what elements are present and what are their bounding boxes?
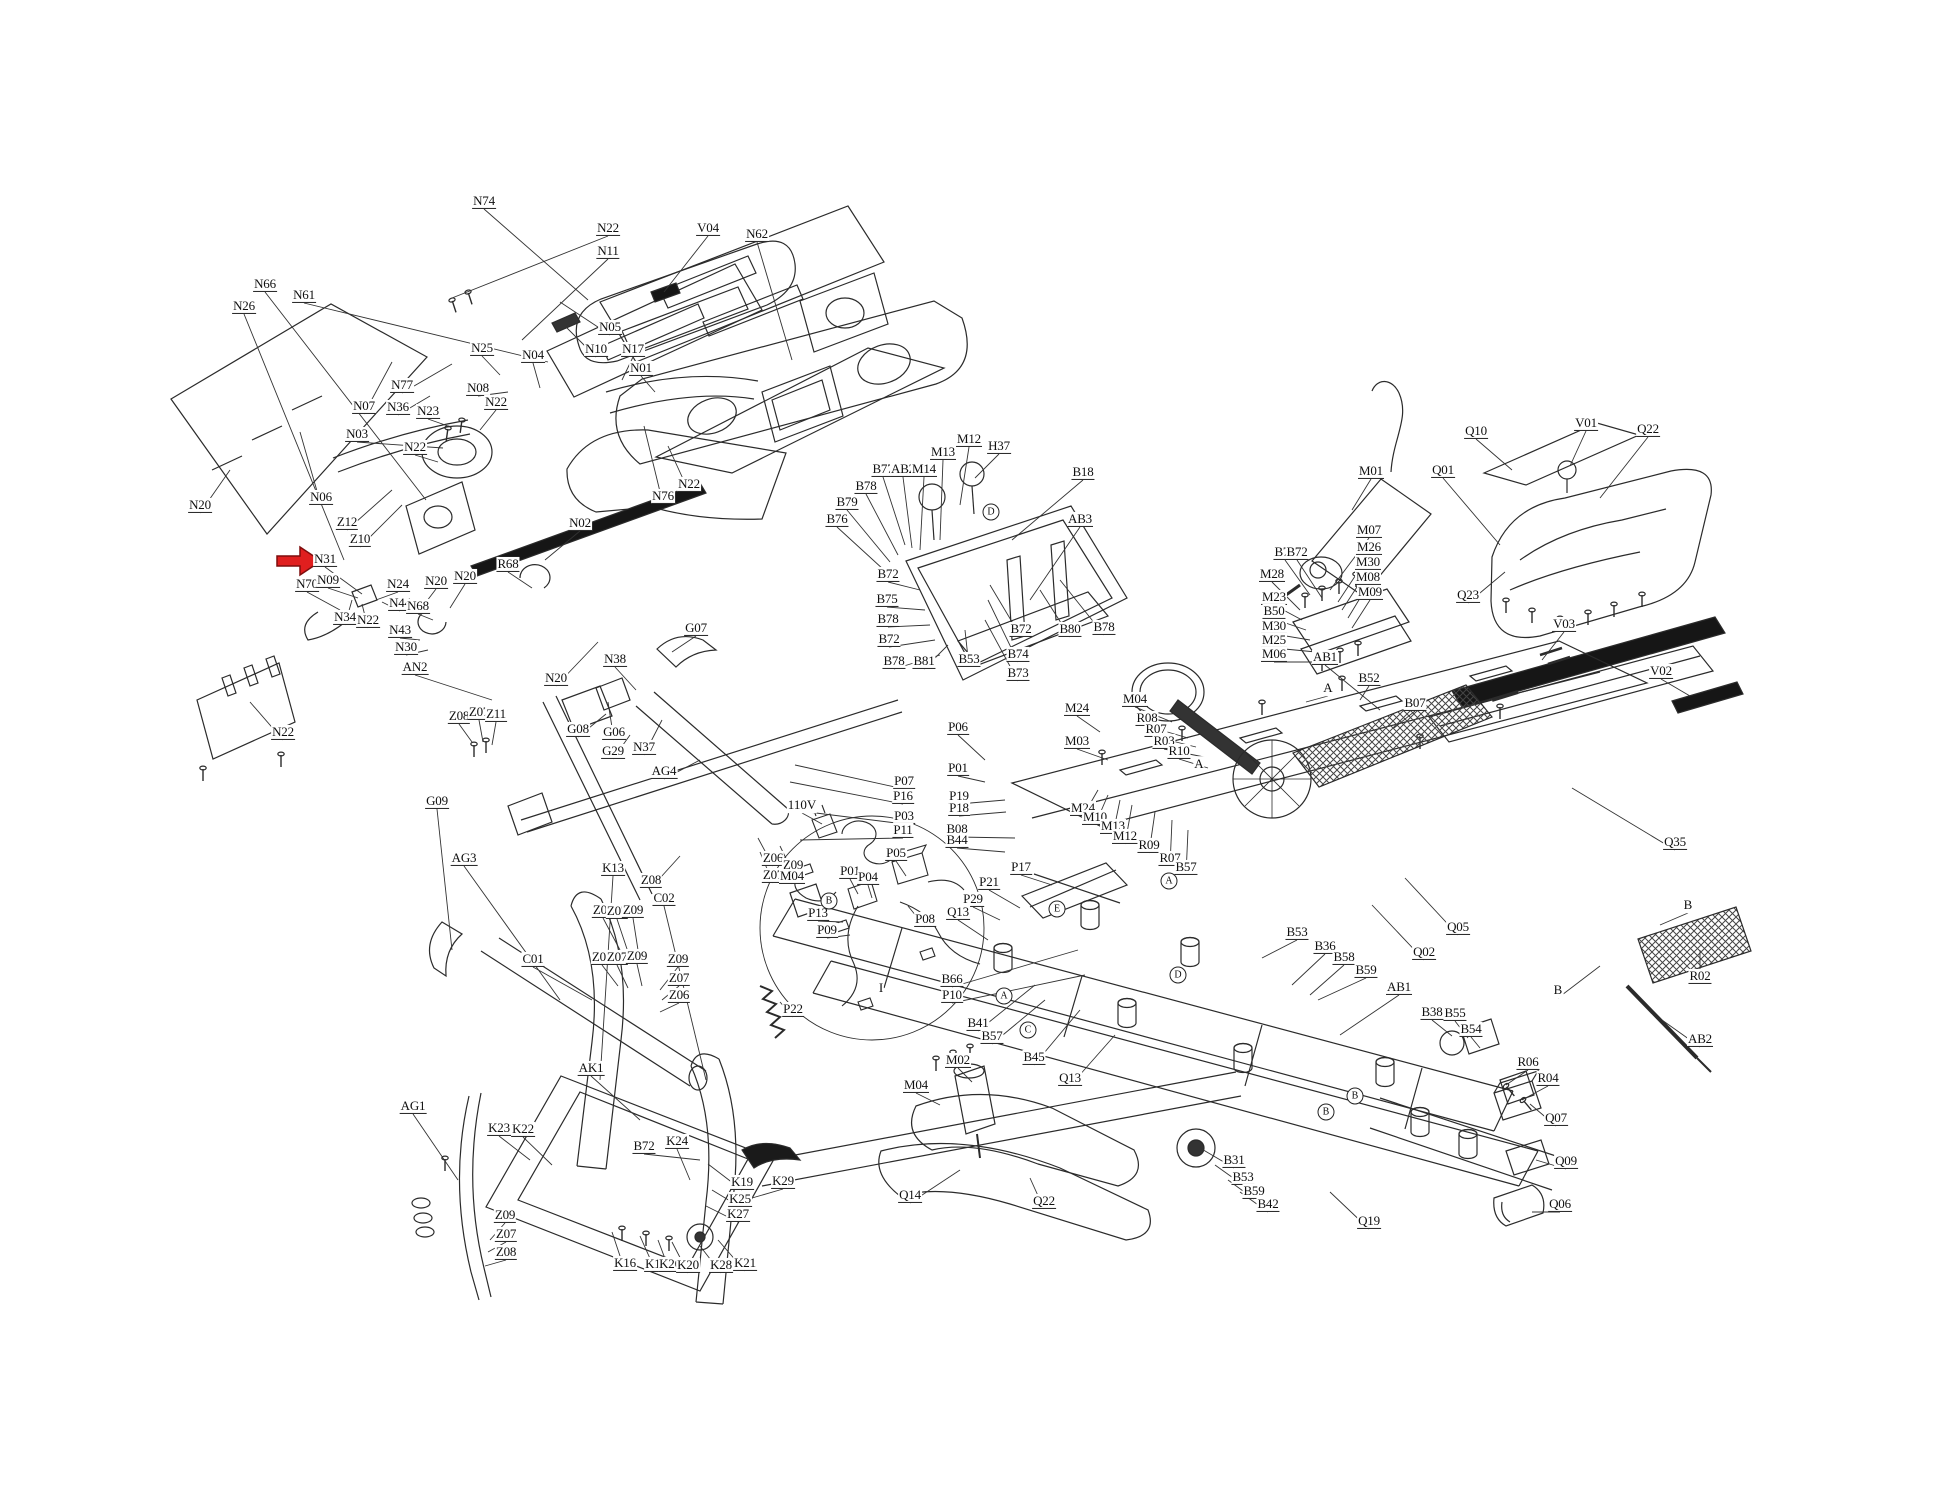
part-label-z06-58: Z06 (762, 851, 784, 866)
part-label-m28-125: M28 (1259, 567, 1285, 582)
part-label-n22-37: N22 (356, 613, 380, 628)
part-label-b-209: B (1347, 1088, 1364, 1105)
part-label-e-182: E (1049, 901, 1066, 918)
part-label-b45-189: B45 (1022, 1050, 1045, 1065)
part-label-b54-213: B54 (1459, 1022, 1482, 1037)
part-label-n22-27: N22 (677, 477, 701, 492)
part-label-b44-166: B44 (945, 833, 968, 848)
part-label-b78-109: B78 (882, 654, 905, 669)
part-label-a-160: A (1161, 873, 1178, 890)
part-label-q13-190: Q13 (1058, 1071, 1082, 1086)
part-label-m12-156: M12 (1112, 829, 1138, 844)
part-label-c-188: C (1020, 1022, 1037, 1039)
part-label-v03-147: V03 (1552, 617, 1576, 632)
part-label-k24-80: K24 (665, 1134, 689, 1149)
part-label-g08-47: G08 (566, 722, 590, 737)
part-label-n05-8: N05 (598, 320, 622, 335)
part-label-n68-39: N68 (406, 599, 430, 614)
part-label-b57-186: B57 (980, 1029, 1003, 1044)
part-label-c01-67: C01 (521, 952, 544, 967)
part-label-i-193: I (878, 980, 884, 996)
part-label-b59-207: B59 (1354, 963, 1377, 978)
part-label-p05-171: P05 (885, 846, 907, 861)
part-label-k19-81: K19 (730, 1175, 754, 1190)
part-label-n25-12: N25 (470, 341, 494, 356)
part-label-p09-179: P09 (816, 923, 838, 938)
part-label-z07-86: Z07 (495, 1227, 517, 1242)
part-label-p22-192: P22 (782, 1002, 804, 1017)
part-label-b18-103: B18 (1071, 465, 1094, 480)
part-label-z08-54: Z08 (448, 709, 470, 724)
part-label-z07-69: Z07 (606, 950, 628, 965)
part-label-r02-219: R02 (1688, 969, 1711, 984)
part-label-n36-18: N36 (386, 400, 410, 415)
part-label-p06-161: P06 (947, 720, 969, 735)
part-label-n34-36: N34 (333, 610, 357, 625)
part-label-n61-3: N61 (292, 288, 316, 303)
part-label-n26-2: N26 (232, 299, 256, 314)
part-label-v02-148: V02 (1649, 664, 1673, 679)
part-label-q22-196: Q22 (1032, 1194, 1056, 1209)
part-label-g07-44: G07 (684, 621, 708, 636)
part-label-n22-4: N22 (596, 221, 620, 236)
part-label-q09-217: Q09 (1554, 1154, 1578, 1169)
part-label-m04-194: M04 (903, 1078, 929, 1093)
part-label-b78-116: B78 (1092, 620, 1115, 635)
part-label-b66-183: B66 (940, 972, 963, 987)
part-label-b72-79: B72 (632, 1139, 655, 1154)
part-label-b55-212: B55 (1443, 1006, 1466, 1021)
part-label-r68-29: R68 (496, 557, 519, 572)
part-label-z07-72: Z07 (668, 971, 690, 986)
part-label-k29-82: K29 (771, 1174, 795, 1189)
part-label-p08-180: P08 (914, 912, 936, 927)
part-label-n20-46: N20 (544, 671, 568, 686)
part-label-b07-149: B07 (1403, 696, 1426, 711)
part-label-n04-11: N04 (521, 348, 545, 363)
part-label-z09-71: Z09 (667, 952, 689, 967)
part-label-z12-23: Z12 (336, 515, 358, 530)
part-label-k13-74: K13 (601, 861, 625, 876)
part-label-b-222: B (1553, 982, 1564, 998)
part-label-n30-41: N30 (394, 640, 418, 655)
part-label-m07-120: M07 (1356, 523, 1382, 538)
part-label-p04-174: P04 (857, 870, 879, 885)
part-label-z09-70: Z09 (626, 949, 648, 964)
part-label-d-202: D (983, 504, 1000, 521)
part-label-b58-206: B58 (1332, 950, 1355, 965)
part-label-n22-20: N22 (403, 440, 427, 455)
part-label-a-139: A (1193, 756, 1204, 772)
part-label-b81-110: B81 (912, 654, 935, 669)
part-label-d-203: D (1170, 967, 1187, 984)
part-label-z09-66: Z09 (622, 903, 644, 918)
part-label-b42-200: B42 (1256, 1197, 1279, 1212)
part-label-q02-152: Q02 (1412, 945, 1436, 960)
part-label-b57-159: B57 (1174, 860, 1197, 875)
part-label-r04-215: R04 (1536, 1071, 1559, 1086)
part-label-n20-35: N20 (453, 569, 477, 584)
part-label-b72-108: B72 (877, 632, 900, 647)
part-label-n01-25: N01 (629, 361, 653, 376)
part-label-k27-84: K27 (726, 1207, 750, 1222)
part-label-k23-77: K23 (487, 1121, 511, 1136)
part-labels-layer: N74N66N26N61N22N11V04N62N05N10N17N04N25N… (0, 0, 1941, 1500)
part-label-m13-100: M13 (930, 445, 956, 460)
part-label-n62-7: N62 (745, 227, 769, 242)
part-label-b52-133: B52 (1357, 671, 1380, 686)
part-label-m26-121: M26 (1356, 540, 1382, 555)
part-label-m09-124: M09 (1357, 585, 1383, 600)
part-label-h37-102: H37 (987, 439, 1011, 454)
part-label-b76-99: B76 (825, 512, 848, 527)
part-label-an2-42: AN2 (402, 660, 429, 675)
part-label-b53-111: B53 (957, 652, 980, 667)
exploded-parts-diagram: N74N66N26N61N22N11V04N62N05N10N17N04N25N… (0, 0, 1941, 1500)
part-label-b73-112: B73 (1006, 666, 1029, 681)
part-label-b-181: B (821, 893, 838, 910)
part-label-n23-15: N23 (416, 404, 440, 419)
part-label-m03-141: M03 (1064, 734, 1090, 749)
part-label-q35-150: Q35 (1663, 835, 1687, 850)
part-label-b72-105: B72 (876, 567, 899, 582)
part-label-n66-1: N66 (253, 277, 277, 292)
part-label-n77-16: N77 (390, 378, 414, 393)
part-label-p10-184: P10 (941, 988, 963, 1003)
part-label-ag4-51: AG4 (651, 764, 678, 779)
part-label-q13-177: Q13 (946, 905, 970, 920)
part-label-k25-83: K25 (728, 1192, 752, 1207)
part-label-b-210: B (1318, 1104, 1335, 1121)
part-label-m01-117: M01 (1358, 464, 1384, 479)
part-label-ab3-104: AB3 (1067, 512, 1093, 527)
part-label-b-221: B (1683, 897, 1694, 913)
part-label-z08-62: Z08 (640, 873, 662, 888)
part-label-m24-140: M24 (1064, 701, 1090, 716)
part-label-z08-87: Z08 (495, 1245, 517, 1260)
part-label-p21-175: P21 (978, 875, 1000, 890)
part-label-m06-130: M06 (1261, 647, 1287, 662)
part-label-m04-134: M04 (1122, 692, 1148, 707)
part-label-b31-197: B31 (1222, 1153, 1245, 1168)
part-label-a-187: A (996, 988, 1013, 1005)
part-label-z11-56: Z11 (485, 707, 507, 722)
part-label-z10-24: Z10 (349, 532, 371, 547)
part-label-p17-172: P17 (1010, 860, 1032, 875)
part-label-n76-26: N76 (651, 489, 675, 504)
part-label-q19-201: Q19 (1357, 1214, 1381, 1229)
part-label-q07-216: Q07 (1544, 1111, 1568, 1126)
part-label-ab2-220: AB2 (1687, 1032, 1713, 1047)
part-label-ag3-53: AG3 (451, 851, 478, 866)
part-label-r06-214: R06 (1516, 1055, 1539, 1070)
part-label-b78-97: B78 (854, 479, 877, 494)
part-label-p16-168: P16 (892, 789, 914, 804)
part-label-z09-85: Z09 (494, 1208, 516, 1223)
part-label-m02-191: M02 (945, 1053, 971, 1068)
part-label-g29-49: G29 (601, 744, 625, 759)
part-label-k22-78: K22 (511, 1122, 535, 1137)
part-label-n38-45: N38 (603, 652, 627, 667)
part-label-q23-146: Q23 (1456, 588, 1480, 603)
part-label-n22-43: N22 (271, 725, 295, 740)
part-label-110v-57: 110V (787, 797, 817, 813)
part-label-m30-122: M30 (1355, 555, 1381, 570)
part-label-k28-92: K28 (709, 1258, 733, 1273)
part-label-ag1-76: AG1 (400, 1099, 427, 1114)
part-label-n06-21: N06 (309, 490, 333, 505)
part-label-ab1-131: AB1 (1312, 650, 1338, 665)
part-label-b38-211: B38 (1420, 1005, 1443, 1020)
part-label-ak1-75: AK1 (578, 1061, 605, 1076)
part-label-n22-14: N22 (484, 395, 508, 410)
part-label-b50-127: B50 (1262, 604, 1285, 619)
part-label-n11-5: N11 (596, 244, 619, 259)
part-label-p01-162: P01 (947, 761, 969, 776)
part-label-n03-19: N03 (345, 427, 369, 442)
part-label-n07-17: N07 (352, 399, 376, 414)
part-label-q10-142: Q10 (1464, 424, 1488, 439)
part-label-n20-22: N20 (188, 498, 212, 513)
part-label-p18-164: P18 (948, 801, 970, 816)
part-label-b72-114: B72 (1009, 622, 1032, 637)
part-label-n02-28: N02 (568, 516, 592, 531)
part-label-n20-34: N20 (424, 574, 448, 589)
part-label-b79-98: B79 (835, 495, 858, 510)
part-label-q01-145: Q01 (1431, 463, 1455, 478)
part-label-r09-157: R09 (1137, 838, 1160, 853)
part-label-p11-170: P11 (892, 823, 913, 838)
part-label-q06-218: Q06 (1548, 1197, 1572, 1212)
part-label-q22-144: Q22 (1636, 422, 1660, 437)
part-label-m04-61: M04 (779, 869, 805, 884)
part-label-b78-107: B78 (876, 612, 899, 627)
part-label-b72-119: B72 (1285, 545, 1308, 560)
part-label-n10-9: N10 (584, 342, 608, 357)
part-label-q05-151: Q05 (1446, 920, 1470, 935)
part-label-ab1-208: AB1 (1386, 980, 1412, 995)
part-label-v04-6: V04 (696, 221, 720, 236)
part-label-k16-88: K16 (613, 1256, 637, 1271)
part-label-v01-143: V01 (1574, 416, 1598, 431)
part-label-n31-30: N31 (313, 552, 337, 567)
part-label-k21-93: K21 (733, 1256, 757, 1271)
part-label-n74-0: N74 (472, 194, 496, 209)
part-label-m08-123: M08 (1355, 570, 1381, 585)
part-label-n24-33: N24 (386, 577, 410, 592)
part-label-a-132: A (1322, 680, 1333, 696)
part-label-g09-52: G09 (425, 794, 449, 809)
part-label-p07-167: P07 (893, 774, 915, 789)
part-label-n37-50: N37 (632, 740, 656, 755)
part-label-b53-204: B53 (1285, 925, 1308, 940)
part-label-b80-115: B80 (1058, 622, 1081, 637)
part-label-b75-106: B75 (875, 592, 898, 607)
part-label-c02-63: C02 (652, 891, 675, 906)
part-label-n43-40: N43 (388, 623, 412, 638)
part-label-k20-91: K20 (676, 1258, 700, 1273)
part-label-n09-32: N09 (316, 573, 340, 588)
part-label-z06-73: Z06 (668, 988, 690, 1003)
part-label-g06-48: G06 (602, 725, 626, 740)
part-label-n17-10: N17 (621, 342, 645, 357)
part-label-b74-113: B74 (1006, 647, 1029, 662)
part-label-q14-195: Q14 (898, 1188, 922, 1203)
part-label-r10-138: R10 (1167, 744, 1190, 759)
part-label-m14-96: M14 (911, 462, 937, 477)
part-label-m12-101: M12 (956, 432, 982, 447)
